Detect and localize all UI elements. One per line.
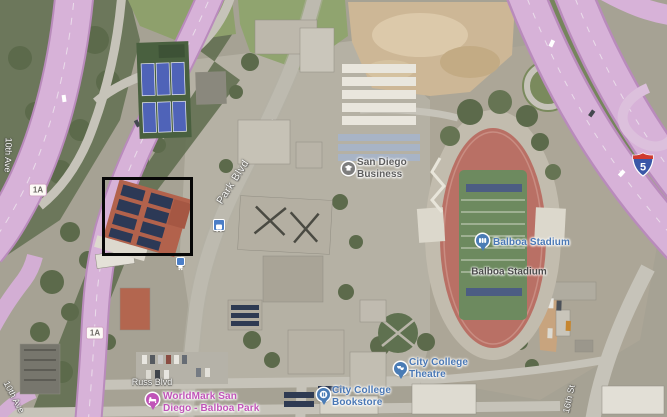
poi-label-city-college-bookstore[interactable]: City College Bookstore [332, 385, 391, 409]
interstate-5-shield-icon: 5 [632, 152, 654, 177]
stadium-icon[interactable] [476, 234, 489, 247]
annotation-rectangle [102, 177, 193, 256]
bus-station-icon-small[interactable] [176, 257, 185, 266]
store-icon[interactable] [317, 388, 330, 401]
poi-label-balboa-stadium[interactable]: Balboa Stadium [493, 237, 570, 249]
tennis-courts [136, 41, 191, 139]
svg-text:5: 5 [640, 162, 646, 174]
road-label-10th-ave-upper: 10th Ave [2, 137, 14, 172]
school-icon[interactable] [342, 162, 355, 175]
poi-label-worldmark[interactable]: WorldMark San Diego - Balboa Park [163, 391, 259, 415]
lodging-icon[interactable] [146, 393, 159, 406]
road-label-russ-blvd: Russ Blvd [132, 377, 173, 387]
poi-label-city-college-theatre[interactable]: City College Theatre [409, 357, 468, 381]
route-shield-1a-upper: 1A [29, 184, 47, 197]
poi-label-san-diego-business[interactable]: San Diego Business [357, 157, 407, 181]
satellite-map-canvas[interactable]: Park Blvd Russ Blvd 10th Ave 10th Ave 16… [0, 0, 667, 417]
area-label-balboa-stadium: Balboa Stadium [471, 266, 547, 278]
theater-icon[interactable] [394, 362, 407, 375]
route-shield-1a-lower: 1A [86, 327, 104, 340]
satellite-imagery [0, 0, 667, 417]
bus-station-icon[interactable] [213, 219, 225, 231]
